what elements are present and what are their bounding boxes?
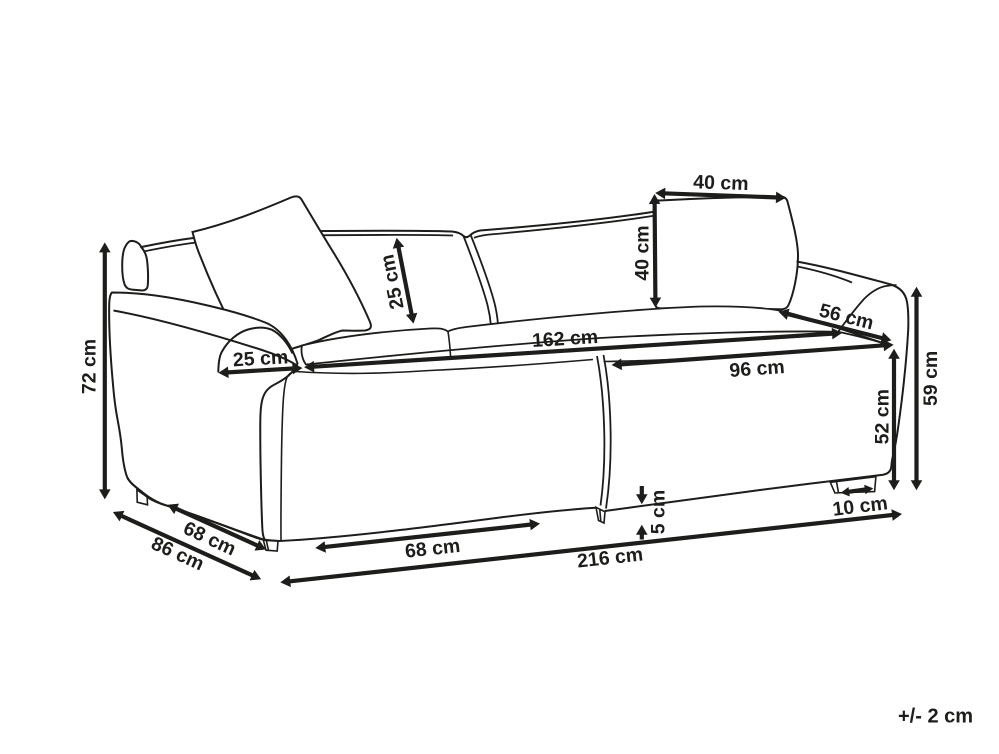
svg-text:40 cm: 40 cm: [693, 171, 749, 195]
svg-text:59 cm: 59 cm: [920, 351, 942, 406]
svg-text:96 cm: 96 cm: [729, 356, 786, 382]
svg-text:25 cm: 25 cm: [232, 346, 288, 371]
svg-text:40 cm: 40 cm: [632, 225, 654, 280]
svg-text:5 cm: 5 cm: [648, 490, 670, 534]
svg-text:162 cm: 162 cm: [531, 326, 598, 352]
svg-text:72 cm: 72 cm: [79, 339, 101, 394]
svg-text:+/- 2 cm: +/- 2 cm: [898, 706, 973, 728]
svg-text:52 cm: 52 cm: [871, 389, 893, 444]
